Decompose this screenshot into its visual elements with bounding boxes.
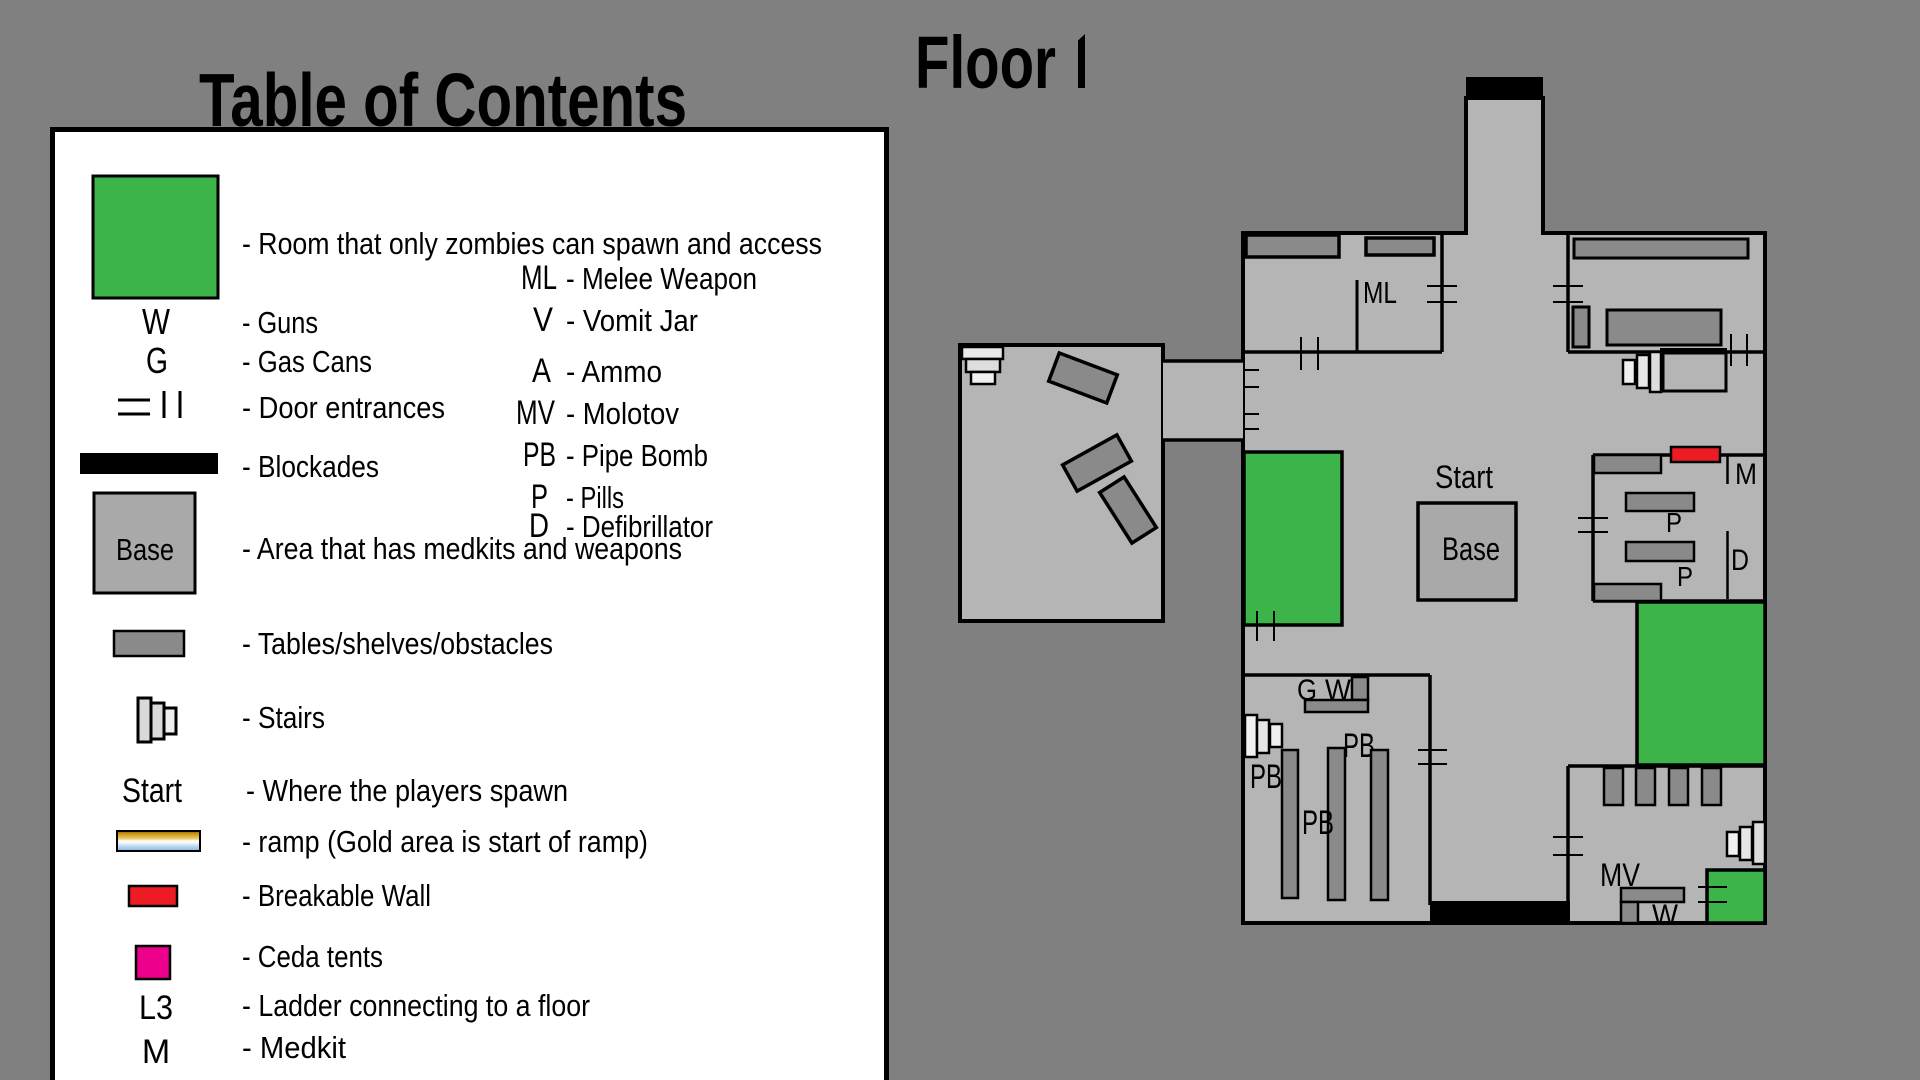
svg-text:G: G: [146, 340, 168, 381]
svg-text:- Vomit Jar: - Vomit Jar: [566, 303, 698, 338]
svg-text:- Medkit: - Medkit: [242, 1030, 346, 1065]
svg-text:Table of Contents: Table of Contents: [199, 58, 687, 142]
svg-text:ML: ML: [521, 259, 557, 297]
svg-text:W: W: [1652, 899, 1679, 932]
svg-text:- Ceda tents: - Ceda tents: [242, 939, 383, 974]
svg-text:Floor: Floor: [915, 21, 1056, 104]
svg-text:- Guns: - Guns: [242, 305, 318, 340]
svg-text:D: D: [1731, 544, 1749, 577]
svg-text:Start: Start: [1435, 459, 1493, 495]
svg-text:- Where the players spawn: - Where the players spawn: [246, 773, 568, 808]
svg-text:M: M: [142, 1033, 170, 1071]
svg-text:MV: MV: [516, 394, 555, 432]
svg-text:PB: PB: [1302, 804, 1334, 842]
svg-text:- ramp (Gold area is start of: - ramp (Gold area is start of ramp): [242, 824, 648, 859]
svg-text:- Melee Weapon: - Melee Weapon: [566, 261, 757, 296]
svg-text:- Room that only zombies can s: - Room that only zombies can spawn and a…: [242, 226, 822, 261]
svg-text:PB: PB: [1250, 758, 1282, 796]
svg-text:A: A: [532, 352, 551, 390]
svg-text:Base: Base: [116, 532, 174, 567]
svg-text:V: V: [533, 301, 553, 339]
svg-text:PB: PB: [523, 436, 556, 474]
svg-text:L3: L3: [139, 989, 173, 1027]
svg-text:- Molotov: - Molotov: [566, 396, 679, 431]
svg-text:D: D: [529, 507, 549, 545]
svg-text:P: P: [1666, 507, 1682, 538]
svg-text:- Tables/shelves/obstacles: - Tables/shelves/obstacles: [242, 626, 553, 661]
svg-text:- Stairs: - Stairs: [242, 700, 325, 735]
svg-text:- Breakable Wall: - Breakable Wall: [242, 878, 431, 913]
svg-text:- Blockades: - Blockades: [242, 449, 379, 484]
svg-text:- Pipe Bomb: - Pipe Bomb: [566, 438, 708, 473]
svg-text:Start: Start: [122, 772, 182, 810]
svg-text:W: W: [142, 301, 170, 342]
svg-text:Base: Base: [1442, 531, 1500, 567]
svg-text:- Door entrances: - Door entrances: [242, 390, 445, 425]
svg-text:M: M: [1735, 458, 1757, 491]
svg-text:- Defibrillator: - Defibrillator: [566, 509, 713, 544]
svg-text:ML: ML: [1363, 275, 1397, 310]
svg-text:- Ammo: - Ammo: [566, 354, 662, 389]
svg-text:- Ladder connecting to a floor: - Ladder connecting to a floor: [242, 988, 590, 1023]
svg-text:- Gas Cans: - Gas Cans: [242, 344, 372, 379]
svg-text:P: P: [1677, 561, 1693, 592]
